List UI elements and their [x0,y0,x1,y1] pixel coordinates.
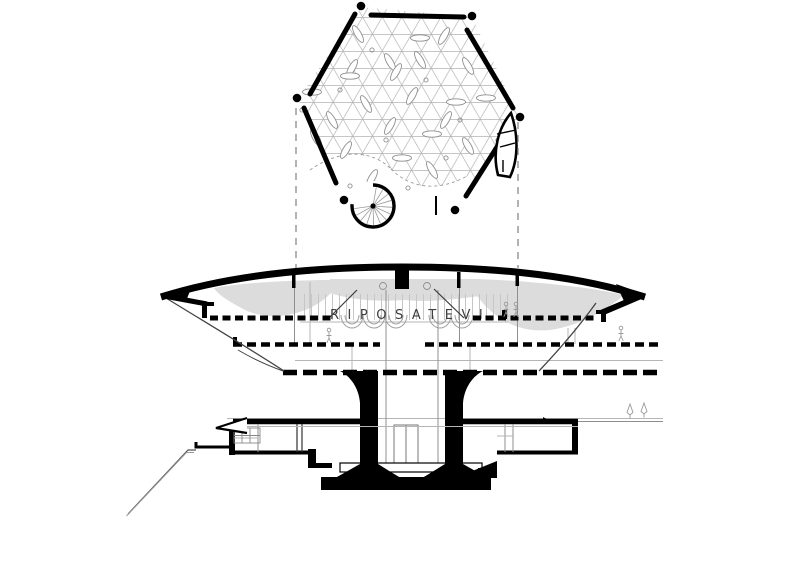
roof-stub [395,267,409,289]
tree-figures [627,403,647,419]
site-slope [127,418,248,516]
drawing-svg: RIPOSATEVI [0,0,800,572]
riposatevi-sign: RIPOSATEVI [330,308,491,323]
hexagonal-roof-plan [285,0,530,229]
spiral-stair-plan [349,181,397,229]
building-section: RIPOSATEVI [127,267,664,516]
architectural-drawing-canvas: RIPOSATEVI [0,0,800,572]
